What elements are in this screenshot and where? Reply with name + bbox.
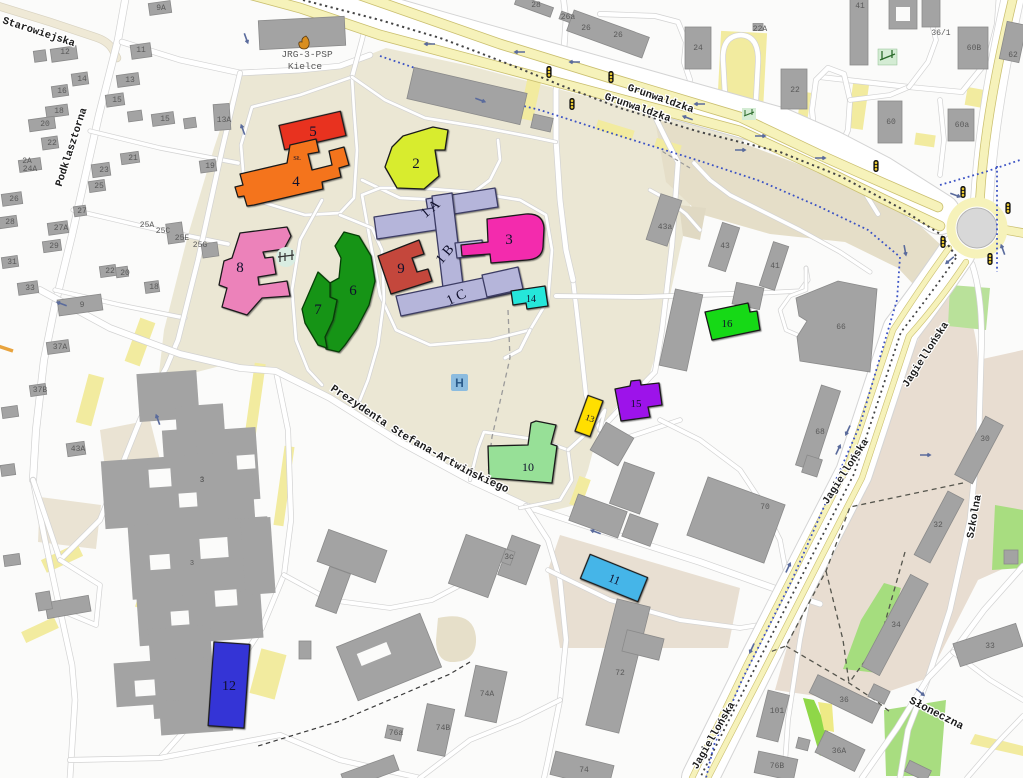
svg-text:36: 36 (839, 696, 849, 705)
svg-text:30: 30 (980, 435, 990, 444)
svg-text:25A: 25A (140, 221, 155, 230)
svg-text:6: 6 (349, 283, 357, 299)
svg-text:10: 10 (522, 460, 534, 474)
svg-text:5: 5 (309, 124, 317, 140)
svg-text:8: 8 (236, 260, 244, 276)
svg-text:20: 20 (120, 269, 130, 278)
svg-text:27: 27 (77, 207, 87, 216)
svg-text:15: 15 (631, 398, 643, 410)
svg-text:9: 9 (80, 301, 85, 310)
svg-text:26: 26 (613, 31, 623, 40)
svg-text:24: 24 (693, 44, 703, 53)
svg-text:43a: 43a (658, 223, 673, 232)
svg-text:7: 7 (314, 302, 322, 318)
svg-text:22: 22 (47, 139, 57, 148)
svg-text:19: 19 (205, 162, 215, 171)
svg-text:34: 34 (891, 621, 901, 630)
svg-text:37A: 37A (53, 343, 68, 352)
svg-text:16: 16 (722, 318, 734, 330)
svg-text:76a: 76a (389, 729, 404, 738)
svg-text:22: 22 (105, 267, 115, 276)
svg-text:43A: 43A (71, 445, 86, 454)
svg-text:41: 41 (770, 262, 780, 271)
svg-text:43: 43 (720, 242, 730, 251)
svg-text:16: 16 (57, 87, 67, 96)
svg-text:74: 74 (579, 766, 589, 775)
svg-text:14: 14 (77, 75, 87, 84)
svg-text:4: 4 (292, 174, 300, 190)
svg-text:22: 22 (790, 86, 800, 95)
svg-text:Kielce: Kielce (288, 61, 323, 72)
svg-text:26: 26 (9, 195, 19, 204)
svg-text:18: 18 (54, 107, 64, 116)
svg-text:74B: 74B (436, 724, 451, 733)
svg-text:SŁ: SŁ (293, 155, 301, 162)
svg-text:76B: 76B (770, 762, 785, 771)
svg-text:33: 33 (985, 642, 995, 651)
svg-text:41: 41 (855, 2, 865, 11)
svg-text:25: 25 (94, 182, 104, 191)
svg-text:22A: 22A (753, 25, 768, 34)
svg-text:18: 18 (149, 283, 159, 292)
svg-text:37B: 37B (33, 386, 48, 395)
svg-text:23: 23 (99, 166, 109, 175)
svg-text:33: 33 (25, 284, 35, 293)
svg-text:60a: 60a (955, 121, 970, 130)
svg-text:62: 62 (1008, 51, 1018, 60)
svg-text:27A: 27A (54, 224, 69, 233)
svg-text:14: 14 (526, 294, 536, 305)
svg-text:3: 3 (505, 232, 513, 248)
svg-text:12: 12 (222, 679, 236, 694)
svg-text:72: 72 (615, 669, 625, 678)
svg-text:12: 12 (60, 48, 70, 57)
svg-text:15: 15 (112, 96, 122, 105)
svg-text:3: 3 (190, 560, 194, 568)
svg-text:25C: 25C (156, 227, 171, 236)
svg-text:74A: 74A (480, 690, 495, 699)
svg-text:13A: 13A (217, 116, 232, 125)
svg-text:20: 20 (40, 120, 50, 129)
svg-text:60: 60 (886, 118, 896, 127)
svg-text:9: 9 (397, 261, 405, 277)
svg-text:3: 3 (200, 476, 205, 485)
svg-text:21: 21 (128, 154, 138, 163)
svg-text:68: 68 (815, 428, 825, 437)
svg-text:36/1: 36/1 (931, 29, 950, 38)
svg-text:24A: 24A (23, 165, 38, 174)
svg-text:JRG-3-PSP: JRG-3-PSP (281, 49, 333, 60)
svg-text:13: 13 (125, 76, 135, 85)
svg-text:60B: 60B (967, 44, 982, 53)
svg-text:2: 2 (412, 156, 420, 172)
svg-text:36A: 36A (832, 747, 847, 756)
svg-text:H: H (455, 376, 464, 390)
svg-text:31: 31 (7, 258, 17, 267)
svg-text:15: 15 (160, 115, 170, 124)
svg-text:32: 32 (933, 521, 943, 530)
svg-text:11: 11 (136, 46, 146, 55)
svg-text:26a: 26a (561, 13, 576, 22)
svg-text:28: 28 (531, 1, 541, 10)
svg-text:29: 29 (49, 242, 59, 251)
svg-text:70: 70 (760, 503, 770, 512)
svg-text:9A: 9A (156, 4, 166, 13)
svg-text:66: 66 (836, 323, 846, 332)
svg-text:28: 28 (5, 218, 15, 227)
svg-text:25G: 25G (193, 241, 208, 250)
svg-text:26: 26 (581, 24, 591, 33)
svg-text:25E: 25E (175, 234, 190, 243)
svg-text:3c: 3c (504, 553, 514, 562)
svg-text:101: 101 (770, 707, 785, 716)
